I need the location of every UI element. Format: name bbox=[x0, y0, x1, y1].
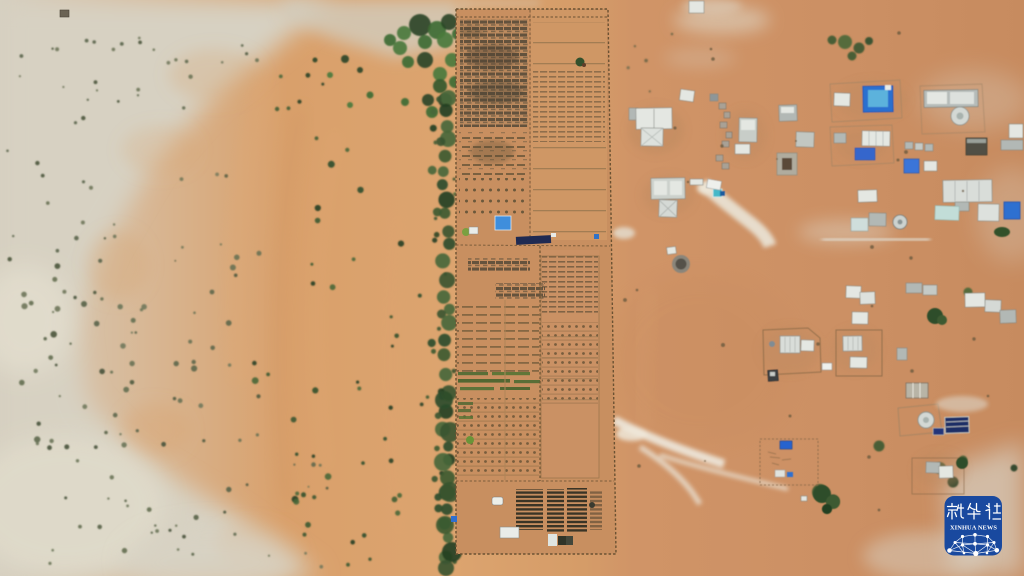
svg-text:XINHUA NEWS: XINHUA NEWS bbox=[950, 525, 997, 532]
